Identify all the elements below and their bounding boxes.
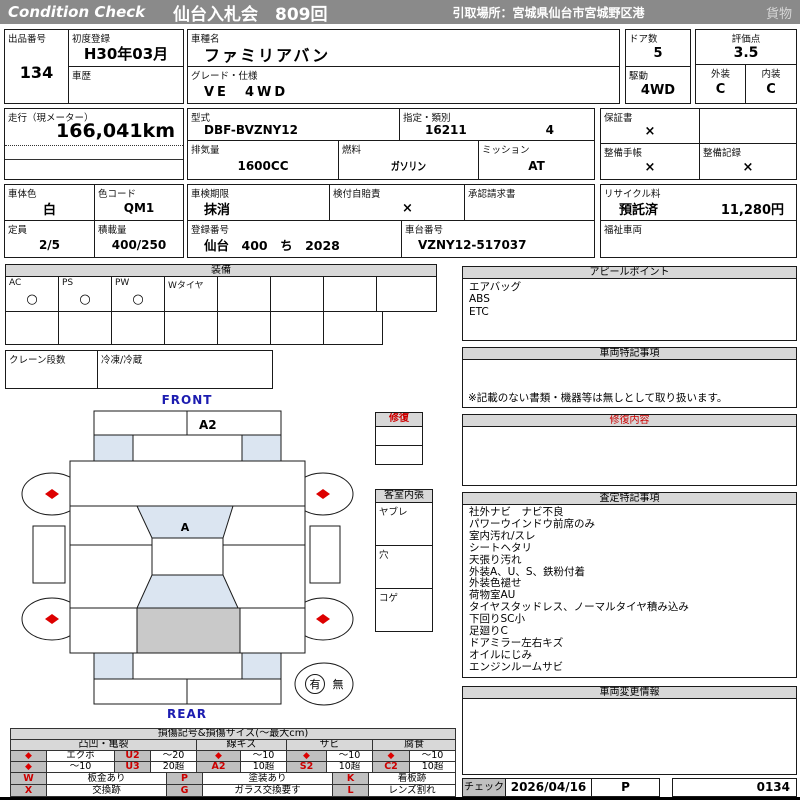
assessment-item: エンジンルームサビ bbox=[469, 662, 796, 674]
legend-code-c2: C2 bbox=[373, 762, 410, 773]
repair-code-legend-table: W 板金あり P 塗装あり K 看板跡 X 交換跡 G ガラス交換要す L レン… bbox=[10, 772, 456, 797]
legend-title: 損傷記号&損傷サイズ(～最大cm) bbox=[11, 729, 456, 740]
code-l-desc: レンズ割れ bbox=[369, 785, 456, 797]
legend-cell: 20超 bbox=[151, 762, 197, 773]
door-count-cell: ドア数 5 bbox=[625, 29, 691, 67]
pickup-location: 引取場所：宮城県仙台市宮城野区港 bbox=[453, 4, 645, 21]
recycle-status: 預託済 bbox=[619, 199, 658, 218]
equipment-row2-cell-4 bbox=[164, 311, 218, 345]
fridge-freezer-cell: 冷凍/冷蔵 bbox=[97, 350, 273, 389]
color-code-cell: 色コード QM1 bbox=[94, 184, 184, 221]
equipment-ps-mark: ○ bbox=[59, 288, 111, 311]
type-class-cell: 指定・類別 16211 4 bbox=[399, 108, 595, 141]
appeal-item: ABS bbox=[469, 293, 796, 305]
spare-tire-yes-label: 有 bbox=[310, 677, 321, 691]
registration-number-value: 仙台 400 ち 2028 bbox=[188, 232, 401, 257]
warranty-cell: 保証書 × bbox=[600, 108, 700, 144]
fuel-cell: 燃料 ガソリン bbox=[338, 140, 479, 180]
exterior-grade-value: C bbox=[696, 76, 745, 103]
crane-stages-cell: クレーン段数 bbox=[5, 350, 98, 389]
cabin-burn-label: コゲ bbox=[379, 590, 398, 604]
crane-stages-label: クレーン段数 bbox=[9, 352, 66, 366]
damage-legend-table: 損傷記号&損傷サイズ(～最大cm) 凸凹・亀裂 線キズ サビ 腐食 ◆ エクボ … bbox=[10, 728, 456, 773]
inspection-expiry-cell: 車検期限 抹消 bbox=[187, 184, 330, 221]
legend-cell: 10超 bbox=[327, 762, 373, 773]
load-capacity-value: 400/250 bbox=[95, 232, 183, 257]
legend-category-dents: 凸凹・亀裂 bbox=[11, 740, 197, 751]
body-color-cell: 車体色 白 bbox=[4, 184, 95, 221]
appeal-points-body: エアバッグ ABS ETC bbox=[462, 278, 797, 341]
code-p-desc: 塗装あり bbox=[203, 773, 333, 785]
legend-diamond-icon: ◆ bbox=[11, 751, 47, 762]
interior-grade-cell: 内装 C bbox=[745, 64, 797, 104]
displacement-value: 1600CC bbox=[188, 152, 338, 179]
cabin-hole-label: 穴 bbox=[379, 547, 389, 561]
legend-row-2: ◆ ～10 U3 20超 A2 10超 S2 10超 C2 10超 bbox=[11, 762, 456, 773]
legend-diamond-icon: ◆ bbox=[287, 751, 327, 762]
mileage-divider-dotted bbox=[5, 145, 183, 146]
legend-cell: ～10 bbox=[327, 751, 373, 762]
hood-corner-left bbox=[94, 435, 133, 461]
legend-cell: 10超 bbox=[410, 762, 456, 773]
auction-title: 仙台入札会 809回 bbox=[173, 0, 328, 25]
vehicle-history-cell: 車歴 bbox=[68, 66, 184, 104]
cabin-tear-cell: ヤブレ bbox=[375, 502, 433, 546]
insurance-cell: 検付自賠責 × bbox=[329, 184, 465, 221]
rear-glass bbox=[137, 575, 238, 608]
drive-type-cell: 駆動 4WD bbox=[625, 66, 691, 104]
appeal-points-list: エアバッグ ABS ETC bbox=[463, 279, 796, 318]
recycle-fee-values: 預託済 11,280円 bbox=[601, 196, 796, 220]
legend-code-u2: U2 bbox=[115, 751, 151, 762]
code-x-desc: 交換跡 bbox=[47, 785, 167, 797]
registration-number-cell: 登録番号 仙台 400 ち 2028 bbox=[187, 220, 402, 258]
chassis-number-value: VZNY12-517037 bbox=[402, 232, 594, 257]
capacity-cell: 定員 2/5 bbox=[4, 220, 95, 258]
cabin-interior-title: 客室内張 bbox=[375, 489, 433, 503]
body-color-value: 白 bbox=[5, 196, 94, 220]
drive-type-value: 4WD bbox=[626, 78, 690, 103]
equipment-cell-ac: AC ○ bbox=[5, 276, 59, 312]
equipment-cell-pw: PW ○ bbox=[111, 276, 165, 312]
code-legend-row-2: X 交換跡 G ガラス交換要す L レンズ割れ bbox=[11, 785, 456, 797]
check-number: 0134 bbox=[673, 779, 796, 796]
equipment-cell-wtire: Wタイヤ bbox=[164, 276, 218, 312]
mileage-value: 166,041km bbox=[5, 120, 175, 142]
repair-details-content bbox=[463, 427, 796, 429]
vehicle-notes-body: ※記載のない書類・機器等は無しとして取り扱います。 bbox=[462, 359, 797, 408]
rear-label: REAR bbox=[167, 707, 207, 721]
vehicle-category: 貨物 bbox=[766, 3, 792, 22]
inspection-expiry-value: 抹消 bbox=[188, 196, 329, 220]
equipment-pw-mark: ○ bbox=[112, 288, 164, 311]
legend-category-corrosion: 腐食 bbox=[373, 740, 456, 751]
appeal-item: ETC bbox=[469, 306, 796, 318]
legend-cell: ～10 bbox=[410, 751, 456, 762]
model-code-cell: 型式 DBF-BVZNY12 bbox=[187, 108, 400, 141]
assessment-item: シートヘタリ bbox=[469, 543, 796, 555]
code-x: X bbox=[11, 785, 47, 797]
type-value: 16211 bbox=[425, 123, 467, 137]
assessment-item: 室内汚れ/スレ bbox=[469, 531, 796, 543]
legend-diamond-icon: ◆ bbox=[11, 762, 47, 773]
approval-request-cell: 承認請求書 bbox=[464, 184, 595, 221]
interior-grade-value: C bbox=[746, 76, 796, 103]
appeal-item: エアバッグ bbox=[469, 281, 796, 293]
insurance-value: × bbox=[330, 196, 464, 220]
check-label-cell: チェック bbox=[462, 778, 506, 797]
lot-number-value: 134 bbox=[5, 41, 68, 103]
grade-cell: グレード・仕様 VE 4WD bbox=[187, 66, 620, 104]
maintenance-record-cell: 整備記録 × bbox=[699, 143, 797, 180]
legend-cell: ～10 bbox=[241, 751, 287, 762]
legend-cell: ～10 bbox=[47, 762, 115, 773]
legend-code-s2: S2 bbox=[287, 762, 327, 773]
score-value: 3.5 bbox=[696, 41, 796, 64]
type-class-values: 16211 4 bbox=[400, 120, 594, 140]
front-label: FRONT bbox=[162, 393, 213, 407]
equipment-cell-empty-1 bbox=[217, 276, 271, 312]
equipment-wtire-label: Wタイヤ bbox=[168, 278, 204, 291]
equipment-cell-empty-4 bbox=[376, 276, 437, 312]
repair-mini-title: 修復 bbox=[375, 412, 423, 427]
capacity-value: 2/5 bbox=[5, 232, 94, 257]
code-g: G bbox=[167, 785, 203, 797]
legend-diamond-icon: ◆ bbox=[373, 751, 410, 762]
equipment-ac-label: AC bbox=[9, 278, 21, 288]
first-registration-value: H30年03月 bbox=[69, 41, 183, 66]
right-side-step bbox=[310, 526, 340, 583]
welfare-vehicle-value bbox=[601, 232, 796, 257]
equipment-cell-empty-2 bbox=[270, 276, 324, 312]
legend-category-rust: サビ bbox=[287, 740, 373, 751]
check-inspector: P bbox=[592, 779, 659, 796]
equipment-pw-label: PW bbox=[115, 278, 129, 288]
vehicle-notes-disclaimer: ※記載のない書類・機器等は無しとして取り扱います。 bbox=[468, 390, 727, 405]
tailgate-corner-left bbox=[94, 653, 133, 679]
auction-sheet: Condition Check 仙台入札会 809回 引取場所：宮城県仙台市宮城… bbox=[0, 0, 800, 800]
displacement-cell: 排気量 1600CC bbox=[187, 140, 339, 180]
check-date-cell: 2026/04/16 bbox=[505, 778, 592, 797]
legend-cell: ～20 bbox=[151, 751, 197, 762]
equipment-row2-cell-1 bbox=[5, 311, 59, 345]
legend-category-scratch: 線キズ bbox=[197, 740, 287, 751]
check-date: 2026/04/16 bbox=[506, 779, 591, 796]
assessment-item: 天張り汚れ bbox=[469, 555, 796, 567]
roof-panel bbox=[152, 538, 223, 575]
equipment-ac-mark: ○ bbox=[6, 288, 58, 311]
code-p: P bbox=[167, 773, 203, 785]
color-code-value: QM1 bbox=[95, 196, 183, 220]
repair-mini-cell-2 bbox=[375, 445, 423, 465]
welfare-vehicle-cell: 福祉車両 bbox=[600, 220, 797, 258]
load-capacity-cell: 積載量 400/250 bbox=[94, 220, 184, 258]
change-info-body bbox=[462, 698, 797, 775]
legend-code-a2: A2 bbox=[197, 762, 241, 773]
equipment-row2-cell-3 bbox=[111, 311, 165, 345]
assessment-notes-body: 社外ナビ ナビ不良 パワーウインドウ前席のみ 室内汚れ/スレ シートヘタリ 天張… bbox=[462, 504, 797, 678]
check-inspector-cell: P bbox=[591, 778, 660, 797]
code-legend-row-1: W 板金あり P 塗装あり K 看板跡 bbox=[11, 773, 456, 785]
equipment-row2-cell-5 bbox=[217, 311, 271, 345]
equipment-ps-label: PS bbox=[62, 278, 73, 288]
legend-cell: エクボ bbox=[47, 751, 115, 762]
recycle-amount: 11,280円 bbox=[721, 199, 784, 218]
spare-tire-no-label: 無 bbox=[333, 677, 344, 691]
code-w: W bbox=[11, 773, 47, 785]
fuel-value: ガソリン bbox=[353, 152, 464, 179]
assessment-notes-list: 社外ナビ ナビ不良 パワーウインドウ前席のみ 室内汚れ/スレ シートヘタリ 天張… bbox=[463, 505, 796, 674]
transmission-cell: ミッション AT bbox=[478, 140, 595, 180]
maintenance-record-value: × bbox=[700, 155, 796, 179]
first-registration-cell: 初度登録 H30年03月 bbox=[68, 29, 184, 67]
legend-code-u3: U3 bbox=[115, 762, 151, 773]
legend-diamond-icon: ◆ bbox=[197, 751, 241, 762]
equipment-row2-cell-6 bbox=[270, 311, 324, 345]
legend-row-1: ◆ エクボ U2 ～20 ◆ ～10 ◆ ～10 ◆ ～10 bbox=[11, 751, 456, 762]
change-info-content bbox=[463, 699, 796, 701]
equipment-cell-empty-3 bbox=[323, 276, 377, 312]
windshield-damage-code: A bbox=[181, 521, 190, 534]
repair-mini-cell-1 bbox=[375, 426, 423, 446]
equipment-row2-cell-7 bbox=[323, 311, 383, 345]
mileage-divider-solid bbox=[5, 159, 183, 160]
transmission-value: AT bbox=[479, 152, 594, 179]
check-label: チェック bbox=[463, 779, 505, 796]
recycle-fee-cell: リサイクル料 預託済 11,280円 bbox=[600, 184, 797, 221]
vehicle-history-value bbox=[69, 78, 183, 103]
hood-corner-right bbox=[242, 435, 281, 461]
check-number-cell: 0134 bbox=[672, 778, 797, 797]
maintenance-book-value: × bbox=[601, 155, 699, 179]
maintenance-book-cell: 整備手帳 × bbox=[600, 143, 700, 180]
cabin-tear-label: ヤブレ bbox=[379, 504, 408, 518]
fridge-freezer-label: 冷凍/冷蔵 bbox=[101, 352, 142, 366]
score-cell: 評価点 3.5 bbox=[695, 29, 797, 65]
cabin-burn-cell: コゲ bbox=[375, 588, 433, 632]
cargo-area bbox=[137, 608, 240, 653]
equipment-cell-ps: PS ○ bbox=[58, 276, 112, 312]
model-name-value: ファミリアバン bbox=[188, 41, 619, 66]
model-code-value: DBF-BVZNY12 bbox=[188, 120, 399, 140]
class-value: 4 bbox=[546, 123, 554, 137]
equipment-row2-cell-2 bbox=[58, 311, 112, 345]
code-w-desc: 板金あり bbox=[47, 773, 167, 785]
door-count-value: 5 bbox=[626, 41, 690, 66]
left-side-step bbox=[33, 526, 65, 583]
warranty-value: × bbox=[601, 120, 699, 143]
legend-cell: 10超 bbox=[241, 762, 287, 773]
assessment-item: 外装色褪せ bbox=[469, 578, 796, 590]
assessment-item: 下回りSC小 bbox=[469, 614, 796, 626]
tailgate-corner-right bbox=[242, 653, 281, 679]
code-g-desc: ガラス交換要す bbox=[203, 785, 333, 797]
warranty-blank-cell bbox=[699, 108, 797, 144]
roof-damage-code: A2 bbox=[199, 418, 217, 432]
repair-details-body bbox=[462, 426, 797, 486]
lot-number-cell: 出品番号 134 bbox=[4, 29, 69, 104]
code-k-desc: 看板跡 bbox=[369, 773, 456, 785]
car-damage-diagram: FRONT A2 A bbox=[0, 392, 370, 722]
model-name-cell: 車種名 ファミリアバン bbox=[187, 29, 620, 67]
code-k: K bbox=[333, 773, 369, 785]
cabin-hole-cell: 穴 bbox=[375, 545, 433, 589]
assessment-item: オイルにじみ bbox=[469, 650, 796, 662]
code-l: L bbox=[333, 785, 369, 797]
exterior-grade-cell: 外装 C bbox=[695, 64, 746, 104]
grade-value: VE 4WD bbox=[188, 78, 619, 103]
chassis-number-cell: 車台番号 VZNY12-517037 bbox=[401, 220, 595, 258]
brand-logo: Condition Check bbox=[8, 3, 173, 21]
header-bar: Condition Check 仙台入札会 809回 引取場所：宮城県仙台市宮城… bbox=[0, 0, 800, 24]
mileage-cell: 走行（現メーター） 166,041km bbox=[4, 108, 184, 180]
approval-request-value bbox=[465, 196, 594, 220]
